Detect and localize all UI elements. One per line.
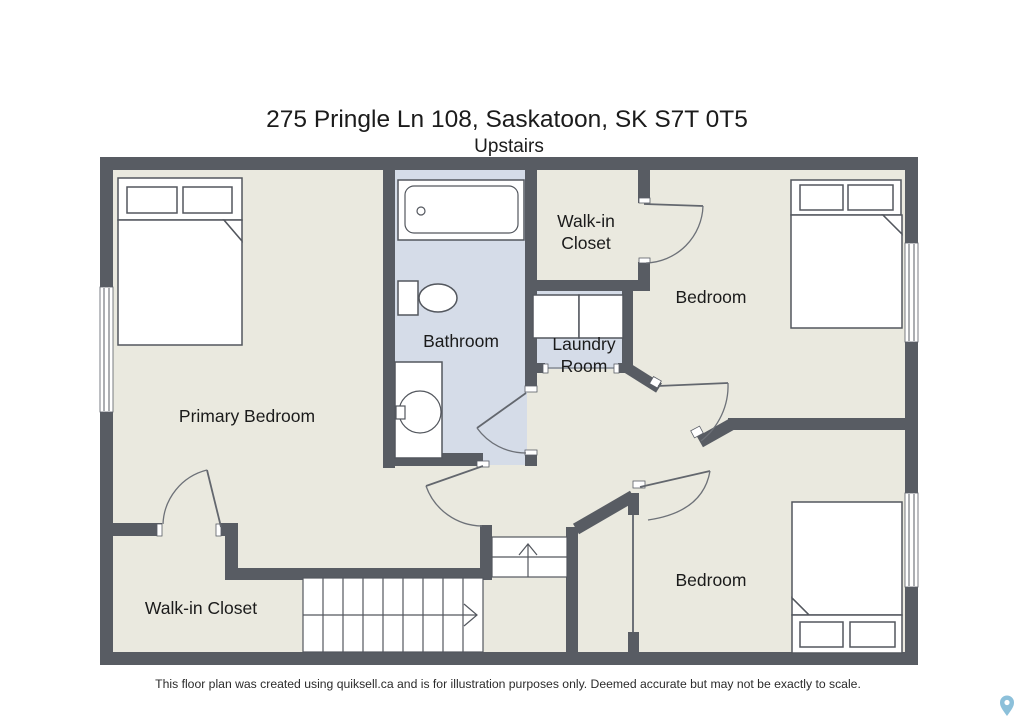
dryer-icon (579, 295, 623, 338)
wall (100, 652, 918, 665)
window-icon (905, 493, 918, 587)
sink-vanity-icon (395, 362, 442, 458)
floor-plan-canvas: 275 Pringle Ln 108, Saskatoon, SK S7T 0T… (0, 0, 1019, 720)
door-jamb (525, 386, 537, 392)
page-subtitle: Upstairs (474, 136, 544, 157)
room-label-laundry-room: Room (561, 356, 608, 376)
wall (628, 632, 639, 652)
bed-icon (118, 178, 242, 345)
door-jamb (639, 198, 650, 203)
door-jamb (157, 524, 162, 536)
bathtub-icon (398, 180, 524, 240)
room-label-laundry-room: Laundry (552, 334, 615, 354)
wall (383, 170, 395, 468)
toilet-icon (398, 281, 457, 315)
wall (113, 523, 162, 536)
wall (525, 280, 650, 291)
location-pin-icon (1000, 696, 1014, 717)
disclaimer-text: This floor plan was created using quikse… (155, 677, 861, 691)
wall (905, 157, 918, 665)
window-icon (905, 243, 918, 342)
bed-icon (791, 180, 902, 328)
window-icon (100, 287, 113, 412)
room-label-walk-in-closet-bottom: Walk-in Closet (145, 598, 257, 618)
wall (100, 157, 918, 170)
wall (728, 418, 905, 430)
door-jamb (543, 364, 548, 373)
wall (527, 363, 545, 373)
door-jamb (614, 364, 619, 373)
room-label-walk-in-closet-top: Closet (561, 233, 611, 253)
bed-icon (792, 502, 902, 653)
wall (638, 262, 650, 291)
door-jamb (525, 450, 537, 455)
wall (480, 525, 492, 580)
wall (628, 493, 639, 515)
washer-icon (533, 295, 579, 338)
page-title: 275 Pringle Ln 108, Saskatoon, SK S7T 0T… (266, 106, 748, 133)
room-label-walk-in-closet-top: Walk-in (557, 211, 615, 231)
wall (566, 527, 578, 652)
room-label-bedroom-top: Bedroom (675, 287, 746, 307)
room-label-bedroom-bottom: Bedroom (675, 570, 746, 590)
room-label-bathroom: Bathroom (423, 331, 499, 351)
floor-plan-page: 275 Pringle Ln 108, Saskatoon, SK S7T 0T… (0, 0, 1019, 720)
room-label-primary-bedroom: Primary Bedroom (179, 406, 315, 426)
